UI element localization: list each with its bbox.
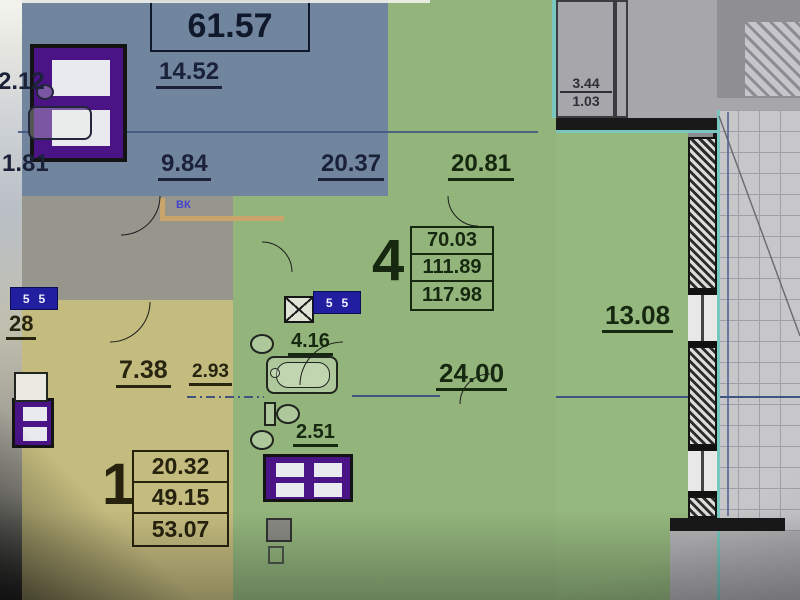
ventilation-shaft-icon bbox=[284, 296, 314, 323]
exterior-wall-hatched bbox=[688, 346, 717, 446]
room-area-label: 1.81 bbox=[2, 152, 49, 176]
dimension-line-corridor bbox=[352, 395, 440, 397]
exterior-wall-hatched bbox=[688, 137, 717, 290]
table-row: 111.89 bbox=[412, 255, 492, 282]
room-area-label: 13.08 bbox=[602, 302, 673, 333]
drain-icon bbox=[270, 368, 280, 378]
cabinet-door bbox=[23, 407, 47, 421]
tub-icon-blue bbox=[28, 106, 92, 140]
top-edge-highlight bbox=[0, 0, 430, 3]
toilet-tank-icon bbox=[264, 402, 276, 426]
cabinet-furniture bbox=[12, 398, 54, 448]
apt-top-area-box: 61.57 bbox=[150, 0, 310, 52]
stair-hatch-region bbox=[745, 22, 800, 96]
position-badge: 55 bbox=[10, 287, 58, 310]
room-area-label: 2.12 bbox=[0, 70, 45, 94]
room-area-label: 28 bbox=[6, 313, 36, 340]
room-area-value: 61.57 bbox=[187, 9, 272, 43]
dimension-line-right bbox=[556, 396, 800, 398]
counter-module bbox=[276, 483, 304, 497]
room-area-label: 2.93 bbox=[189, 362, 232, 386]
table-row: 20.32 bbox=[134, 452, 227, 483]
green-right-region bbox=[556, 130, 688, 600]
table-row: 70.03 bbox=[412, 228, 492, 255]
table-row: 117.98 bbox=[412, 282, 492, 309]
counter-module bbox=[314, 483, 342, 497]
duct-label: ВК bbox=[176, 200, 191, 211]
room-area-label: 20.81 bbox=[448, 152, 514, 181]
bathtub-inner bbox=[276, 362, 330, 388]
room-area-label: 2.51 bbox=[293, 422, 338, 447]
thin-wall bbox=[613, 0, 617, 118]
room-area-label: 4.16 bbox=[288, 331, 333, 356]
sink-icon bbox=[250, 430, 274, 450]
kitchen-counter bbox=[263, 454, 353, 502]
stove-icon bbox=[14, 372, 48, 402]
floor-plan: ВК 55 55 61.57 14.52 2.12 1.81 9.84 20.3… bbox=[0, 0, 800, 600]
balcony-fraction: 3.44 1.03 bbox=[560, 76, 612, 108]
window bbox=[688, 290, 717, 346]
balcony-area-counted: 1.03 bbox=[560, 93, 612, 108]
apartment1-area-table: 20.32 49.15 53.07 bbox=[132, 450, 229, 547]
apartment-number: 4 bbox=[372, 232, 404, 290]
position-badge: 55 bbox=[313, 291, 361, 314]
exterior-wall-hatched bbox=[688, 496, 717, 518]
balcony-area-total: 3.44 bbox=[560, 76, 612, 93]
corridor-gray-region bbox=[18, 196, 234, 300]
teal-edge-line bbox=[552, 0, 556, 118]
apartment-number: 1 bbox=[102, 456, 134, 514]
room-area-label: 20.37 bbox=[318, 152, 384, 181]
pillow bbox=[52, 60, 110, 96]
room-area-label: 7.38 bbox=[116, 358, 171, 388]
small-fixture bbox=[268, 546, 284, 564]
room-area-label: 9.84 bbox=[158, 152, 211, 181]
cabinet-door bbox=[23, 427, 47, 441]
wall-balcony-bottom bbox=[670, 518, 785, 531]
duct-line bbox=[160, 198, 165, 218]
window bbox=[688, 446, 717, 496]
room-area-label: 24.00 bbox=[436, 360, 507, 391]
counter-module bbox=[276, 463, 304, 477]
bed-furniture bbox=[30, 44, 127, 162]
counter-module bbox=[314, 463, 342, 477]
room-area-label: 14.52 bbox=[156, 60, 222, 89]
teal-edge-line bbox=[556, 130, 717, 133]
duct-line bbox=[160, 216, 284, 221]
sink-icon bbox=[250, 334, 274, 354]
wall-topright-horizontal bbox=[556, 118, 717, 130]
apartment4-area-table: 70.03 111.89 117.98 bbox=[410, 226, 494, 311]
table-row: 53.07 bbox=[134, 514, 227, 545]
table-row: 49.15 bbox=[134, 483, 227, 514]
appliance-box bbox=[266, 518, 292, 542]
bottom-right-light-region bbox=[670, 531, 800, 600]
